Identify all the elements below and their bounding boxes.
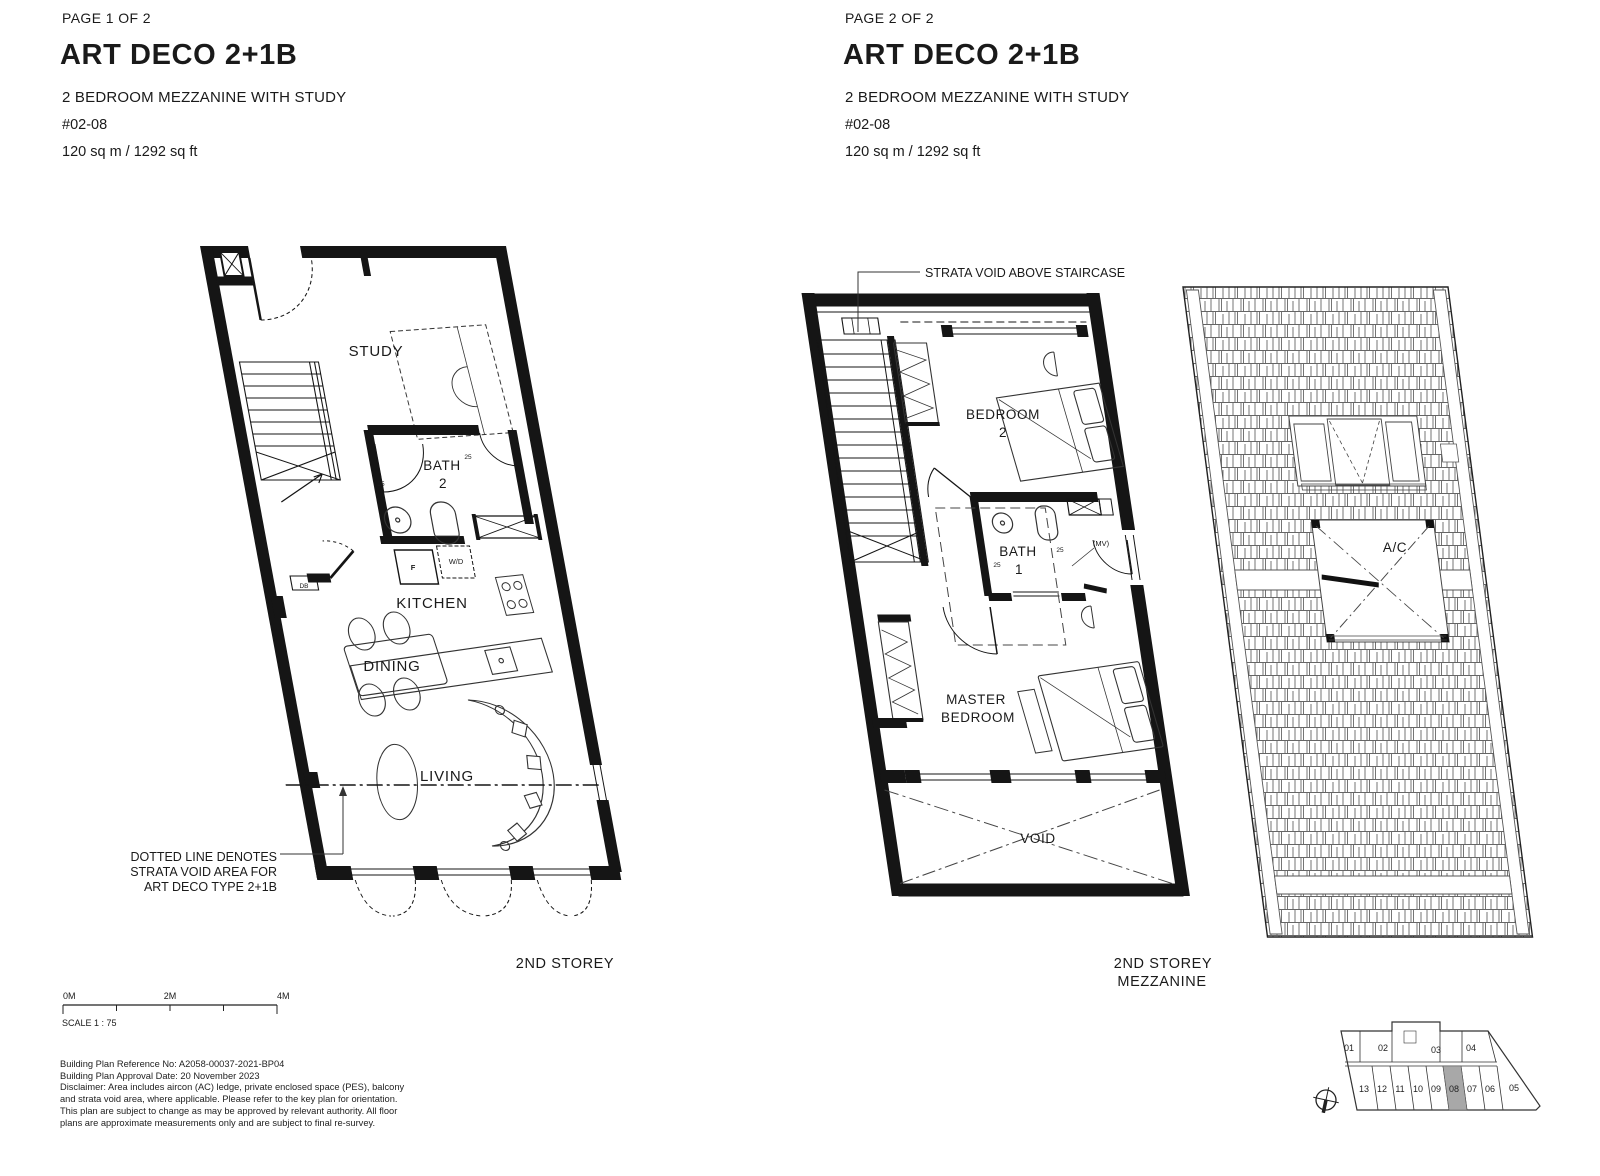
keyplan-unit-07: 07 (1467, 1084, 1477, 1094)
top-window (941, 325, 1089, 337)
sofa (465, 700, 567, 851)
keyplan-unit-06: 06 (1485, 1084, 1495, 1094)
door-width-label: 25 (464, 454, 472, 461)
room-label-bedroom2-num: 2 (999, 425, 1007, 440)
keyplan-unit-12: 12 (1377, 1084, 1387, 1094)
washer-dryer-label: W/D (449, 557, 464, 566)
plan1-annotation-line3: ART DECO TYPE 2+1B (144, 880, 277, 894)
note-line: plans are approximate measurements only … (60, 1118, 404, 1130)
room-label-dining: DINING (363, 658, 420, 675)
fridge-label: F (411, 563, 416, 572)
door-width-label: 25 (993, 562, 1001, 569)
plan-notes: Building Plan Reference No: A2058-00037-… (60, 1059, 404, 1129)
page2-page-label: PAGE 2 OF 2 (845, 10, 934, 26)
stair-top-box (842, 318, 880, 334)
room-label-bath2-num: 2 (439, 476, 447, 491)
room-label-bath1: BATH (999, 544, 1036, 559)
plan1-storey-label: 2ND STOREY (516, 956, 614, 972)
room-label-bath2: BATH (423, 458, 460, 473)
roof-low-band (1275, 876, 1512, 894)
ac-opening (1311, 520, 1449, 642)
plan2-storey-label-2: MEZZANINE (1117, 974, 1206, 990)
ac-label: A/C (1383, 540, 1407, 555)
ac-duct-box (474, 514, 541, 540)
keyplan-unit-02: 02 (1378, 1043, 1388, 1053)
plan1-annotation-line1: DOTTED LINE DENOTES (130, 850, 277, 864)
floorplan-sheet: PAGE 1 OF 2 ART DECO 2+1B 2 BEDROOM MEZZ… (0, 0, 1600, 1176)
bench (1018, 689, 1052, 753)
room-label-void: VOID (1020, 831, 1055, 846)
room-label-study: STUDY (349, 343, 404, 360)
keyplan-unit-08: 08 (1449, 1084, 1459, 1094)
hall-door (301, 541, 359, 578)
page2-unit-number: #02-08 (845, 117, 890, 133)
room-label-kitchen: KITCHEN (396, 595, 467, 612)
page2-area: 120 sq m / 1292 sq ft (845, 144, 980, 160)
mv-label: (MV) (1093, 539, 1110, 548)
staircase (817, 340, 928, 562)
bath1-fixtures (990, 506, 1059, 540)
scale-ratio: SCALE 1 : 75 (62, 1018, 117, 1028)
stove (495, 575, 533, 616)
keyplan-unit-04: 04 (1466, 1043, 1476, 1053)
note-line: and strata void area, where applicable. … (60, 1094, 404, 1106)
keyplan-unit-05: 05 (1509, 1083, 1519, 1093)
bath1-walls (974, 497, 1108, 597)
keyplan-unit-11: 11 (1395, 1084, 1404, 1094)
entry-door (248, 252, 376, 320)
room-label-living: LIVING (420, 768, 474, 785)
room-label-master-1: MASTER (946, 692, 1006, 707)
wall-light (1080, 606, 1094, 628)
plan-mezzanine: STRATA VOID ABOVE STAIRCASE BEDROOM 2 BA… (780, 240, 1210, 1000)
keyplan-unit-10: 10 (1413, 1084, 1423, 1094)
page1-subtitle: 2 BEDROOM MEZZANINE WITH STUDY (62, 89, 346, 106)
page1-area: 120 sq m / 1292 sq ft (62, 144, 197, 160)
db-label: DB (299, 583, 308, 590)
plan2-annotation: STRATA VOID ABOVE STAIRCASE (925, 266, 1125, 280)
plan-2nd-storey: STUDY BATH 2 25 25 F W/D DB KITCHEN DINI… (40, 230, 680, 976)
scale-4m: 4M (277, 991, 290, 1001)
compass-icon (1311, 1085, 1342, 1116)
bottom-wall (315, 866, 622, 880)
note-line: This plan are subject to change as may b… (60, 1106, 404, 1118)
room-label-bedroom2: BEDROOM (966, 407, 1040, 422)
bedside-table (1042, 352, 1058, 376)
keyplan-unit-09: 09 (1431, 1084, 1441, 1094)
page2-subtitle: 2 BEDROOM MEZZANINE WITH STUDY (845, 89, 1129, 106)
page1-title: ART DECO 2+1B (60, 39, 297, 72)
roof-plan: A/C (1150, 270, 1550, 960)
void-window-row (880, 770, 1167, 783)
note-line: Disclaimer: Area includes aircon (AC) le… (60, 1082, 404, 1094)
page1-unit-number: #02-08 (62, 117, 107, 133)
scale-bar: 0M 2M 4M SCALE 1 : 75 (55, 985, 300, 1033)
page1-page-label: PAGE 1 OF 2 (62, 10, 151, 26)
bedroom2-door (924, 468, 970, 497)
scale-2m: 2M (164, 991, 177, 1001)
room-label-master-2: BEDROOM (941, 710, 1015, 725)
door-width-label: 25 (1056, 547, 1064, 554)
keyplan-unit-03: 03 (1431, 1045, 1441, 1055)
scale-0m: 0M (63, 991, 76, 1001)
void-outline-dashed (935, 508, 1066, 645)
keyplan-unit-13: 13 (1359, 1084, 1369, 1094)
note-line: Building Plan Reference No: A2058-00037-… (60, 1059, 404, 1071)
skylight (1289, 416, 1427, 490)
keyplan-unit-01: 01 (1344, 1043, 1354, 1053)
bifold-doors (355, 880, 598, 916)
study-desk (390, 325, 513, 440)
room-label-bath1-num: 1 (1015, 562, 1023, 577)
page2-title: ART DECO 2+1B (843, 39, 1080, 72)
master-door (943, 607, 997, 654)
fridge-box (394, 550, 438, 584)
exterior-walls (206, 246, 617, 878)
plan1-annotation-line2: STRATA VOID AREA FOR (130, 865, 277, 879)
note-line: Building Plan Approval Date: 20 November… (60, 1071, 404, 1083)
key-plan: 01 02 03 04 13 12 11 10 09 08 07 06 05 (1280, 1000, 1600, 1140)
door-width-label: 25 (377, 481, 385, 488)
